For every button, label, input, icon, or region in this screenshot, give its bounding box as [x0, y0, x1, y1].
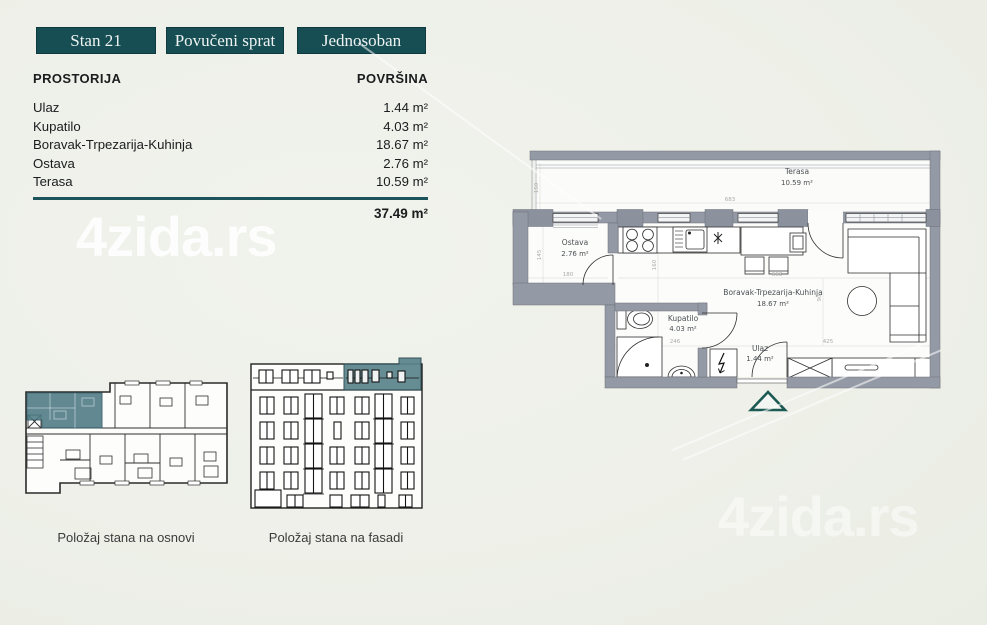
floorplan-sheet: 4zida.rs 4zida.rs Stan 21 Povučeni sprat… — [0, 0, 987, 625]
shower — [617, 337, 662, 379]
badge-type: Jednosoban — [297, 27, 426, 54]
room-name: Ulaz — [33, 99, 59, 118]
dim-ostava-width: 180 — [563, 272, 574, 278]
room-area: 4.03 m² — [383, 118, 428, 137]
wardrobe — [788, 358, 832, 378]
kitchen-counter — [618, 227, 740, 253]
boravak-label: Boravak-Trpezarija-Kuhinja — [723, 288, 822, 297]
dim-living-depth: 90 — [817, 294, 823, 301]
room-name: Kupatilo — [33, 118, 81, 137]
ostava-area: 2.76 m² — [561, 250, 589, 258]
room-name: Ostava — [33, 155, 75, 174]
boravak-area: 18.67 m² — [757, 300, 789, 308]
table-row: Kupatilo 4.03 m² — [33, 118, 428, 137]
table-divider — [33, 197, 428, 200]
coffee-table — [848, 287, 877, 316]
room-area: 18.67 m² — [376, 136, 428, 155]
badge-unit: Stan 21 — [36, 27, 156, 54]
kupatilo-area: 4.03 m² — [669, 325, 697, 333]
osnova-caption: Položaj stana na osnovi — [20, 530, 232, 545]
terasa-area: 10.59 m² — [781, 179, 813, 187]
dim-kitchen-depth: 160 — [652, 259, 658, 270]
room-name: Terasa — [33, 173, 73, 192]
watermark-right: 4zida.rs — [718, 484, 919, 549]
terasa-label: Terasa — [784, 167, 809, 176]
osnova-thumbnail — [20, 378, 232, 500]
fasada-thumbnail — [247, 356, 425, 511]
badge-type-label: Jednosoban — [322, 31, 401, 51]
osnova-stairs — [27, 436, 43, 468]
water-heater — [710, 349, 737, 377]
dim-hall-width: 425 — [823, 339, 834, 345]
sink — [673, 227, 707, 252]
dim-terasa-depth: 150 — [534, 182, 540, 193]
room-area: 10.59 m² — [376, 173, 428, 192]
header-area: POVRŠINA — [357, 71, 428, 86]
area-table-rows: Ulaz 1.44 m² Kupatilo 4.03 m² Boravak-Tr… — [33, 99, 428, 192]
area-table-header: PROSTORIJA POVRŠINA — [33, 71, 428, 86]
table-row: Terasa 10.59 m² — [33, 173, 428, 192]
table-row: Ostava 2.76 m² — [33, 155, 428, 174]
badge-floor: Povučeni sprat — [166, 27, 284, 54]
kupatilo-label: Kupatilo — [668, 314, 699, 323]
room-area: 2.76 m² — [383, 155, 428, 174]
table-row: Boravak-Trpezarija-Kuhinja 18.67 m² — [33, 136, 428, 155]
room-name: Boravak-Trpezarija-Kuhinja — [33, 136, 192, 155]
dim-terasa-width: 683 — [725, 197, 736, 203]
badge-unit-label: Stan 21 — [70, 31, 121, 51]
dim-ostava-depth: 145 — [537, 249, 543, 260]
ulaz-label: Ulaz — [752, 344, 768, 353]
main-floorplan: Terasa 10.59 m² Ostava 2.76 m² Boravak-T… — [505, 143, 950, 428]
badge-floor-label: Povučeni sprat — [175, 31, 276, 51]
dim-bath-width: 246 — [670, 339, 681, 345]
header-room: PROSTORIJA — [33, 71, 121, 86]
dim-living-width: 663 — [772, 272, 783, 278]
table-row: Ulaz 1.44 m² — [33, 99, 428, 118]
toilet — [617, 309, 653, 329]
room-area: 1.44 m² — [383, 99, 428, 118]
stove — [623, 227, 657, 253]
fasada-caption: Položaj stana na fasadi — [247, 530, 425, 545]
ostava-label: Ostava — [562, 238, 588, 247]
area-table: PROSTORIJA POVRŠINA Ulaz 1.44 m² Kupatil… — [33, 71, 428, 221]
ulaz-area: 1.44 m² — [746, 355, 774, 363]
total-area: 37.49 m² — [33, 206, 428, 221]
